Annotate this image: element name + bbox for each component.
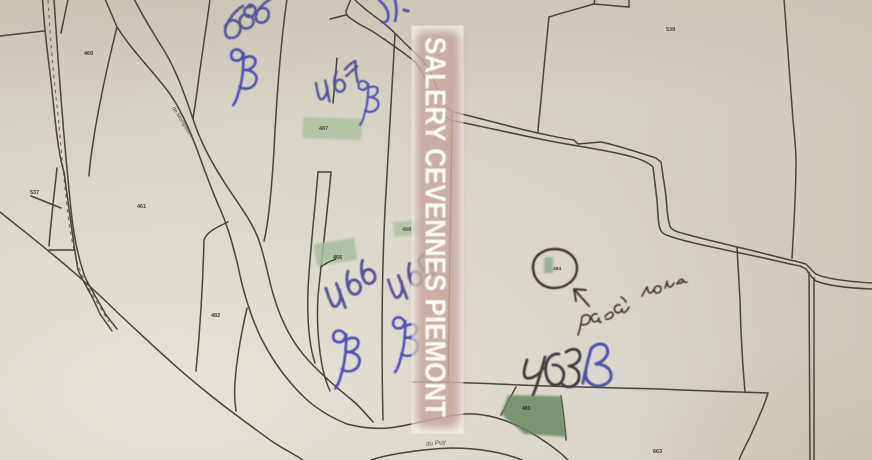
svg-text:SALERY CEVENNES PIEMONT: SALERY CEVENNES PIEMONT: [419, 37, 451, 417]
svg-text:487: 487: [319, 126, 328, 132]
svg-text:484: 484: [553, 266, 561, 272]
svg-text:483: 483: [522, 406, 531, 412]
svg-text:460: 460: [84, 51, 93, 57]
svg-text:663: 663: [653, 449, 662, 455]
svg-text:461: 461: [137, 204, 146, 210]
svg-text:537: 537: [30, 190, 39, 196]
svg-text:488: 488: [402, 227, 411, 233]
svg-text:482: 482: [211, 313, 220, 319]
svg-text:539: 539: [666, 27, 675, 33]
